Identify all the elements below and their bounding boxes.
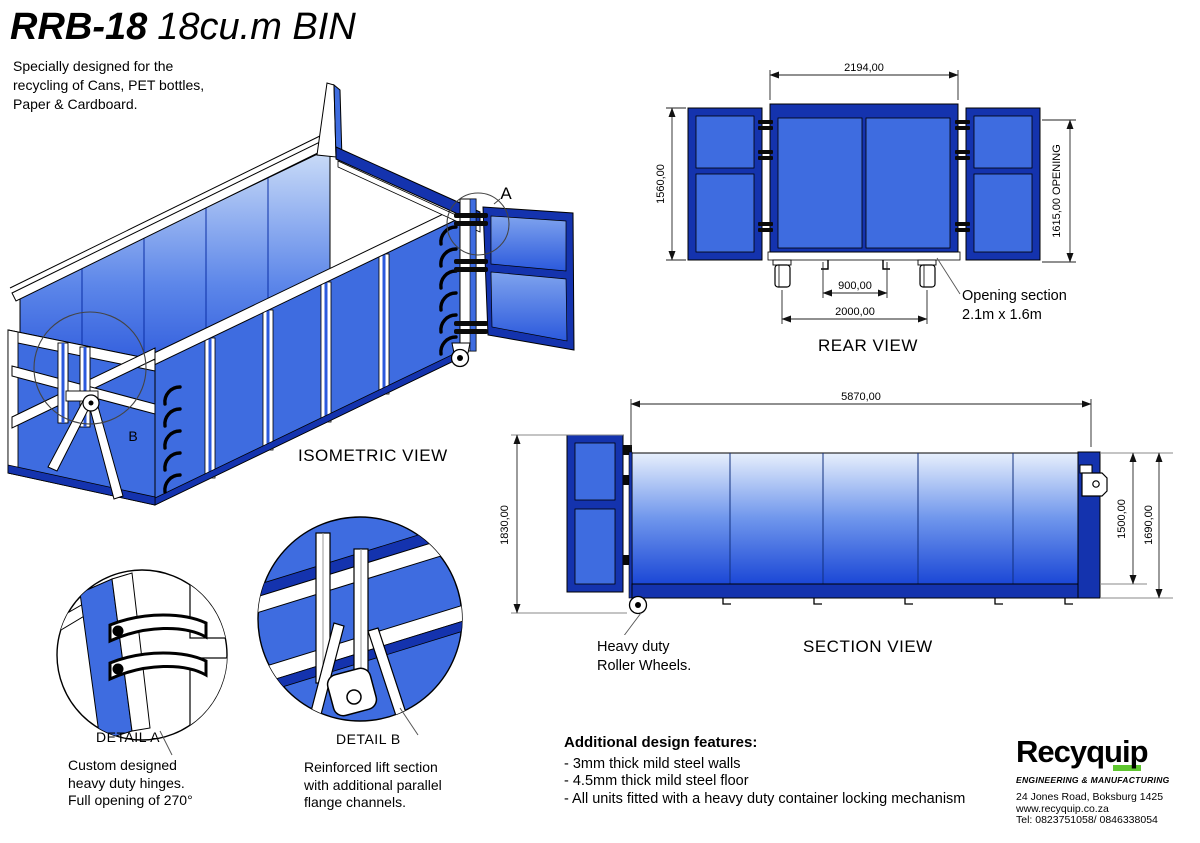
section-dim-overall: 1830,00: [499, 505, 511, 545]
feature-item: - All units fitted with a heavy duty con…: [564, 791, 965, 809]
rear-dim-height: 1560,00: [655, 164, 667, 204]
rear-opening-callout: Opening section 2.1m x 1.6m: [962, 287, 1067, 325]
company-address: 24 Jones Road, Boksburg 1425 www.recyqui…: [1016, 792, 1196, 827]
rear-left-door: [688, 108, 762, 260]
company-tagline: ENGINEERING & MANUFACTURING: [1016, 775, 1196, 785]
company-logo-block: Recyquip ENGINEERING & MANUFACTURING 24 …: [1016, 736, 1196, 827]
model-code: RRB-18: [10, 6, 147, 48]
section-roller-wheel: [630, 597, 647, 614]
iso-roller-wheel: [452, 343, 471, 367]
section-dim-length: 5870,00: [841, 391, 881, 403]
feature-item: - 4.5mm thick mild steel floor: [564, 773, 965, 791]
drawing-sheet: RRB-1818cu.m BIN Specially designed for …: [0, 0, 1200, 843]
section-body: [629, 452, 1100, 604]
detail-b-description: Reinforced lift section with additional …: [304, 759, 442, 812]
rear-view-label: REAR VIEW: [818, 336, 918, 356]
roller-wheels-callout: Heavy duty Roller Wheels.: [597, 638, 691, 676]
detail-b-caption: DETAIL B: [336, 731, 401, 747]
detail-a-description: Custom designed heavy duty hinges. Full …: [68, 757, 193, 810]
rear-dim-width: 2194,00: [844, 62, 884, 74]
section-view-label: SECTION VIEW: [803, 637, 933, 657]
model-capacity: 18cu.m BIN: [157, 6, 356, 48]
section-floor-brackets: [723, 598, 1073, 604]
isometric-view-label: ISOMETRIC VIEW: [298, 446, 448, 466]
features-heading: Additional design features:: [564, 734, 965, 752]
page-title: RRB-1818cu.m BIN: [10, 6, 356, 49]
rear-body: [770, 104, 958, 252]
section-view-drawing: 5870,00 1830,00 1500,00 1690,00: [495, 385, 1195, 635]
iso-rear-top-rail: [336, 147, 480, 232]
rear-dim-opening: 1615,00 OPENING: [1051, 144, 1063, 238]
feature-item: - 3mm thick mild steel walls: [564, 756, 965, 774]
detail-a-caption: DETAIL A: [96, 729, 160, 745]
iso-open-door: [483, 207, 574, 350]
phone-line: Tel: 0823751058/ 0846338054: [1016, 815, 1196, 827]
features-block: Additional design features: - 3mm thick …: [564, 734, 965, 808]
address-line: 24 Jones Road, Boksburg 1425: [1016, 792, 1196, 804]
section-open-door: [567, 435, 632, 592]
rear-view-drawing: 2194,00 1560,00 1615,00 OPENING 900,00 2…: [650, 50, 1100, 380]
marker-b-label: B: [128, 428, 137, 444]
section-dim-outer: 1690,00: [1143, 505, 1155, 545]
marker-a-label: A: [500, 184, 512, 203]
iso-front-face: [8, 330, 180, 505]
rear-dim-wheel-outer: 2000,00: [835, 306, 875, 318]
rear-floor-strip: [768, 252, 960, 260]
detail-b-drawing: [250, 503, 470, 738]
rear-dim-wheel-inner: 900,00: [838, 280, 872, 292]
rear-right-door: [966, 108, 1040, 260]
company-name: Recyquip: [1016, 736, 1196, 768]
section-dim-inner: 1500,00: [1116, 499, 1128, 539]
